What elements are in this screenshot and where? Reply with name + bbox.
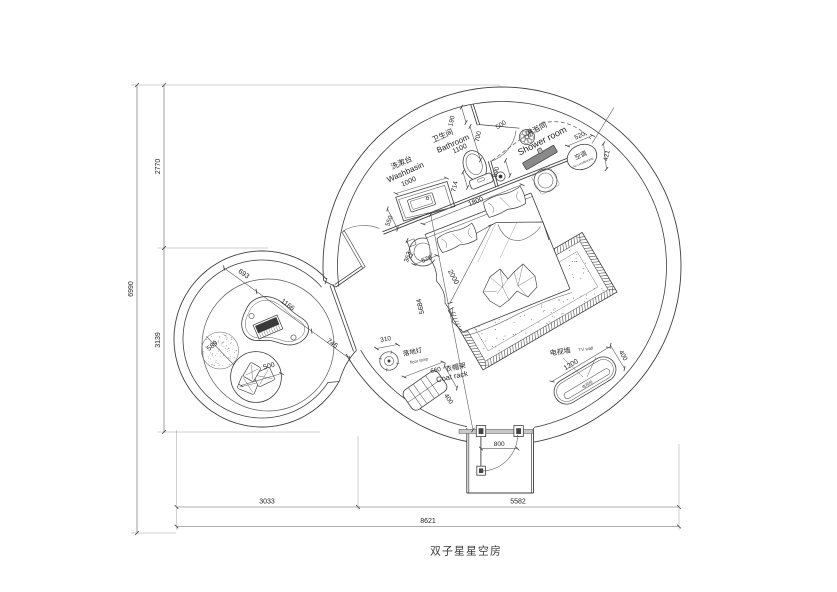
svg-text:8621: 8621: [420, 518, 436, 525]
svg-text:6990: 6990: [128, 281, 135, 297]
svg-text:2770: 2770: [155, 159, 162, 175]
svg-text:双子星星空房: 双子星星空房: [430, 544, 502, 558]
svg-text:5582: 5582: [510, 499, 526, 506]
svg-text:3139: 3139: [155, 332, 162, 348]
svg-text:800: 800: [494, 441, 505, 448]
svg-text:3033: 3033: [259, 499, 275, 506]
